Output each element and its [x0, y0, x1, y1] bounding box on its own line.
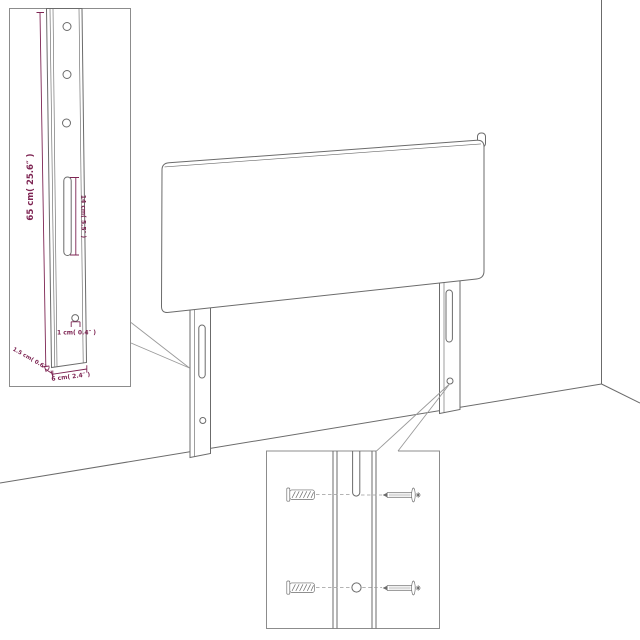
left-leg-hole — [200, 418, 206, 424]
wall-plug-icon — [287, 581, 315, 594]
dimension-label-thickness: 1.5 cm( 0.6″ ) — [11, 347, 51, 373]
inset-leg-bottom-hole — [72, 315, 79, 322]
dimension-label-width: 6 cm( 2.4″ ) — [51, 371, 91, 383]
inset-leg-hole-2 — [63, 71, 71, 79]
right-leg-hole — [447, 378, 453, 384]
inset-leg-hole-1 — [63, 23, 71, 31]
headboard-leg-left — [190, 299, 211, 458]
inset-hardware-hole — [352, 583, 361, 592]
callout-leader-left — [131, 323, 190, 369]
left-leg-body — [190, 299, 211, 458]
dimension-label-height: 65 cm( 25.6″ ) — [26, 153, 36, 220]
wall-plug-icon — [287, 488, 315, 501]
diagram-canvas: 65 cm( 25.6″ ) 14 cm( 5.5″ ) 1 cm( 0.4″ … — [0, 0, 640, 640]
panel-face — [161, 140, 484, 312]
assembly-diagram: 65 cm( 25.6″ ) 14 cm( 5.5″ ) 1 cm( 0.4″ … — [0, 0, 640, 640]
detail-inset-hardware — [267, 451, 440, 629]
callout-leader-right — [377, 384, 451, 452]
inset-leg-hole-3 — [63, 119, 71, 127]
headboard-panel — [161, 133, 485, 312]
inset-leg-slot — [64, 177, 71, 256]
left-leg-slot — [199, 325, 205, 378]
dimension-label-hole: 1 cm( 0.4″ ) — [57, 330, 96, 337]
dimension-label-slot: 14 cm( 5.5″ ) — [80, 195, 87, 238]
detail-inset-leg: 65 cm( 25.6″ ) 14 cm( 5.5″ ) 1 cm( 0.4″ … — [10, 9, 131, 387]
floor-line-right — [602, 384, 640, 403]
right-leg-slot — [446, 290, 452, 342]
